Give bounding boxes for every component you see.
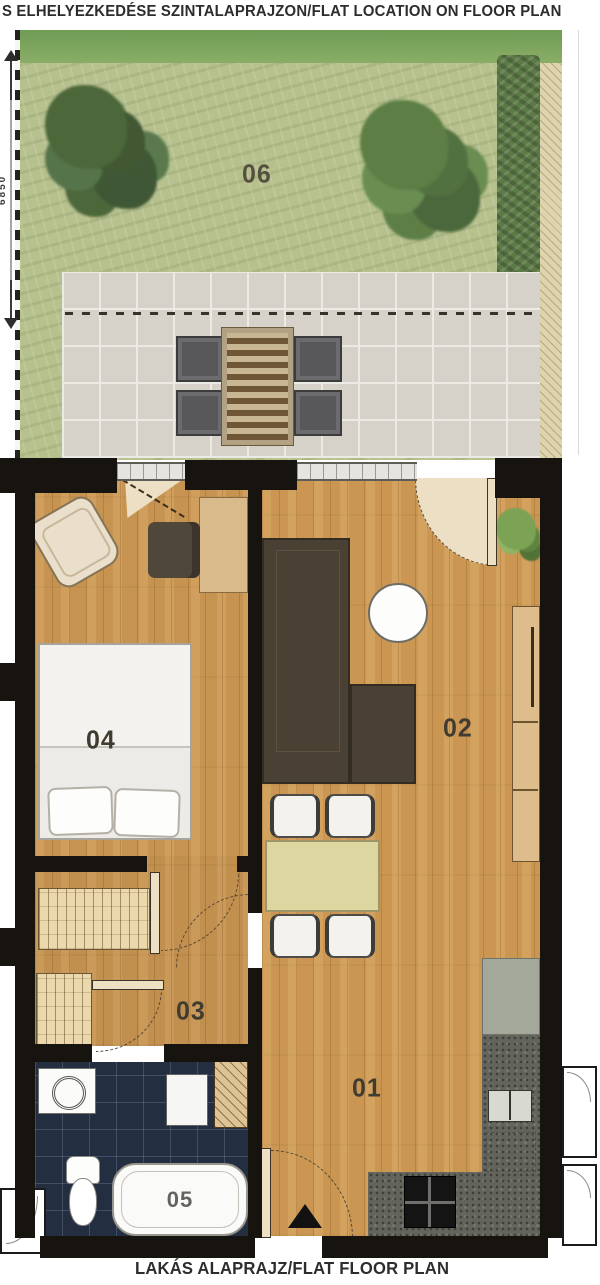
- terrace-threshold: [60, 452, 540, 458]
- entrance-arrow-icon: [288, 1204, 322, 1228]
- dining-table: [265, 840, 380, 912]
- property-line-dashed: [65, 312, 537, 315]
- wall: [164, 1044, 248, 1062]
- plant-icon: [496, 508, 536, 550]
- dimension-label: 6850: [0, 100, 15, 280]
- niche-arc: [567, 1170, 591, 1198]
- floor-plan-page: S ELHELYEZKEDÉSE SZINTALAPRAJZON/FLAT LO…: [0, 0, 600, 1285]
- dimension-arrow-up-icon: [4, 50, 18, 61]
- desk-chair: [148, 522, 200, 578]
- plot-boundary-dashed: [15, 30, 20, 460]
- dimension-arrow-down-icon: [4, 318, 18, 329]
- coffee-table: [368, 583, 428, 643]
- dining-chair: [325, 914, 375, 958]
- patio-table: [222, 328, 293, 445]
- sofa-chaise: [350, 684, 416, 784]
- kitchen-cabinet: [482, 958, 540, 1035]
- wall-pier: [0, 928, 15, 966]
- pillow: [113, 788, 181, 838]
- shelf-divider: [513, 721, 538, 723]
- plan-title: LAKÁS ALAPRAJZ/FLAT FLOOR PLAN: [135, 1258, 449, 1279]
- kitchen-sink: [488, 1090, 532, 1122]
- room-label-bedroom: 04: [86, 725, 116, 755]
- wall: [322, 1236, 548, 1258]
- sofa: [262, 538, 350, 784]
- appliance-outline-dashed: [486, 1132, 536, 1172]
- dining-chair: [325, 794, 375, 838]
- basin-bowl: [52, 1076, 86, 1110]
- plan-location-title: S ELHELYEZKEDÉSE SZINTALAPRAJZON/FLAT LO…: [2, 3, 562, 21]
- facade-niche: [562, 1066, 597, 1158]
- shelf-handle: [531, 627, 534, 707]
- patio-chair: [294, 336, 342, 382]
- niche-arc: [567, 1072, 591, 1102]
- patio-chair: [176, 336, 224, 382]
- facade-niche: [562, 1164, 597, 1246]
- patio-chair: [294, 390, 342, 436]
- wall: [15, 856, 147, 872]
- room-label-garden: 06: [242, 159, 272, 189]
- wall: [248, 968, 262, 1238]
- wall: [248, 483, 262, 913]
- washbasin: [38, 1068, 96, 1114]
- tree-icon: [45, 85, 127, 169]
- patio-chair: [176, 390, 224, 436]
- wall: [540, 460, 562, 1238]
- bedroom-terrace-window: [117, 462, 185, 481]
- room-label-hall: 03: [176, 996, 206, 1026]
- pillow: [47, 786, 114, 836]
- wall: [40, 1236, 255, 1258]
- bathtub: 05: [112, 1163, 248, 1236]
- room-label-bathroom: 05: [167, 1187, 193, 1213]
- room-label-living: 02: [443, 713, 473, 743]
- door-leaf: [150, 872, 160, 954]
- toilet-bowl: [69, 1178, 97, 1226]
- page-edge-line: [578, 30, 579, 455]
- wall: [0, 458, 117, 493]
- shelf-unit: [512, 606, 540, 862]
- living-terrace-window: [297, 462, 417, 481]
- washing-machine: [166, 1074, 208, 1126]
- dining-chair: [270, 794, 320, 838]
- room-label-kitchen: 01: [352, 1073, 382, 1103]
- wall-pier: [0, 663, 15, 701]
- stove-hob: [404, 1176, 456, 1228]
- wall: [237, 856, 248, 872]
- wall: [35, 1044, 92, 1062]
- desk: [199, 497, 248, 593]
- tall-cabinet: [214, 1058, 248, 1128]
- wall: [185, 460, 297, 490]
- built-in-wardrobe: [36, 973, 92, 1050]
- dining-chair: [270, 914, 320, 958]
- garden-back-hedge: [15, 30, 562, 63]
- shelf-divider: [513, 789, 538, 791]
- sink-divider: [509, 1091, 511, 1120]
- built-in-wardrobe: [38, 888, 150, 950]
- garden-fence-strip: [540, 55, 562, 460]
- door-leaf: [92, 980, 164, 990]
- tree-icon: [360, 100, 448, 190]
- terrace-area: [62, 272, 540, 458]
- sofa-cushions: [276, 550, 340, 752]
